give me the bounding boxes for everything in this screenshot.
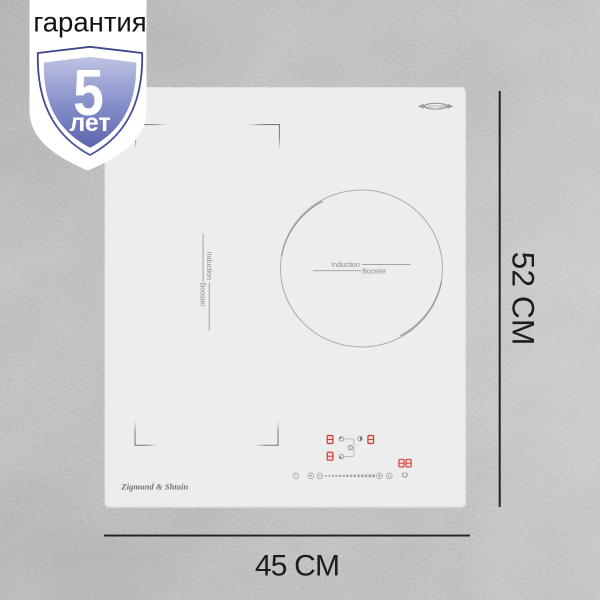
svg-text:52 CM: 52 CM [505, 252, 541, 346]
svg-text:Zigmund & Shtain: Zigmund & Shtain [121, 483, 189, 492]
svg-text:P: P [388, 474, 391, 479]
svg-text:45 CM: 45 CM [255, 549, 339, 582]
svg-text:гарантия: гарантия [33, 7, 146, 38]
svg-text:лет: лет [69, 109, 110, 137]
svg-text:SCHOTT CERAN: SCHOTT CERAN [424, 104, 448, 108]
